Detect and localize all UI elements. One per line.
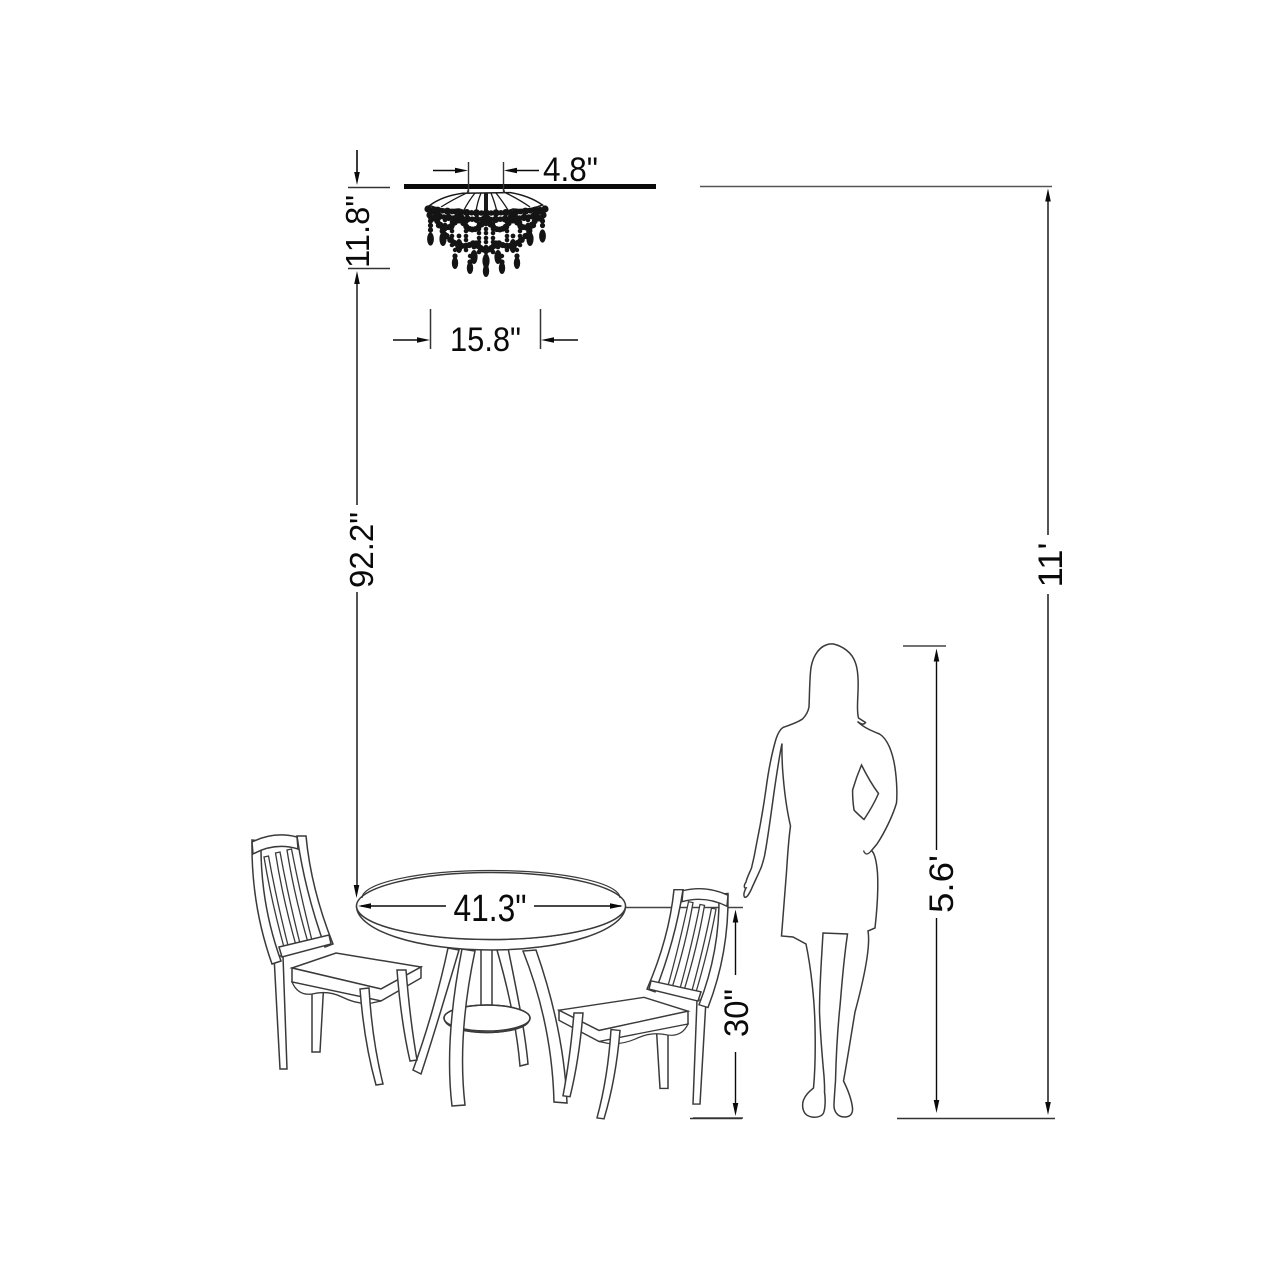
svg-text:4.8": 4.8" (543, 151, 598, 189)
svg-text:11': 11' (1032, 543, 1070, 588)
svg-text:11.8": 11.8" (339, 195, 376, 268)
svg-text:5.6': 5.6' (923, 855, 961, 913)
svg-text:41.3": 41.3" (454, 888, 527, 930)
svg-text:30": 30" (718, 989, 756, 1037)
svg-text:92.2": 92.2" (343, 512, 380, 588)
svg-text:15.8": 15.8" (450, 321, 521, 359)
